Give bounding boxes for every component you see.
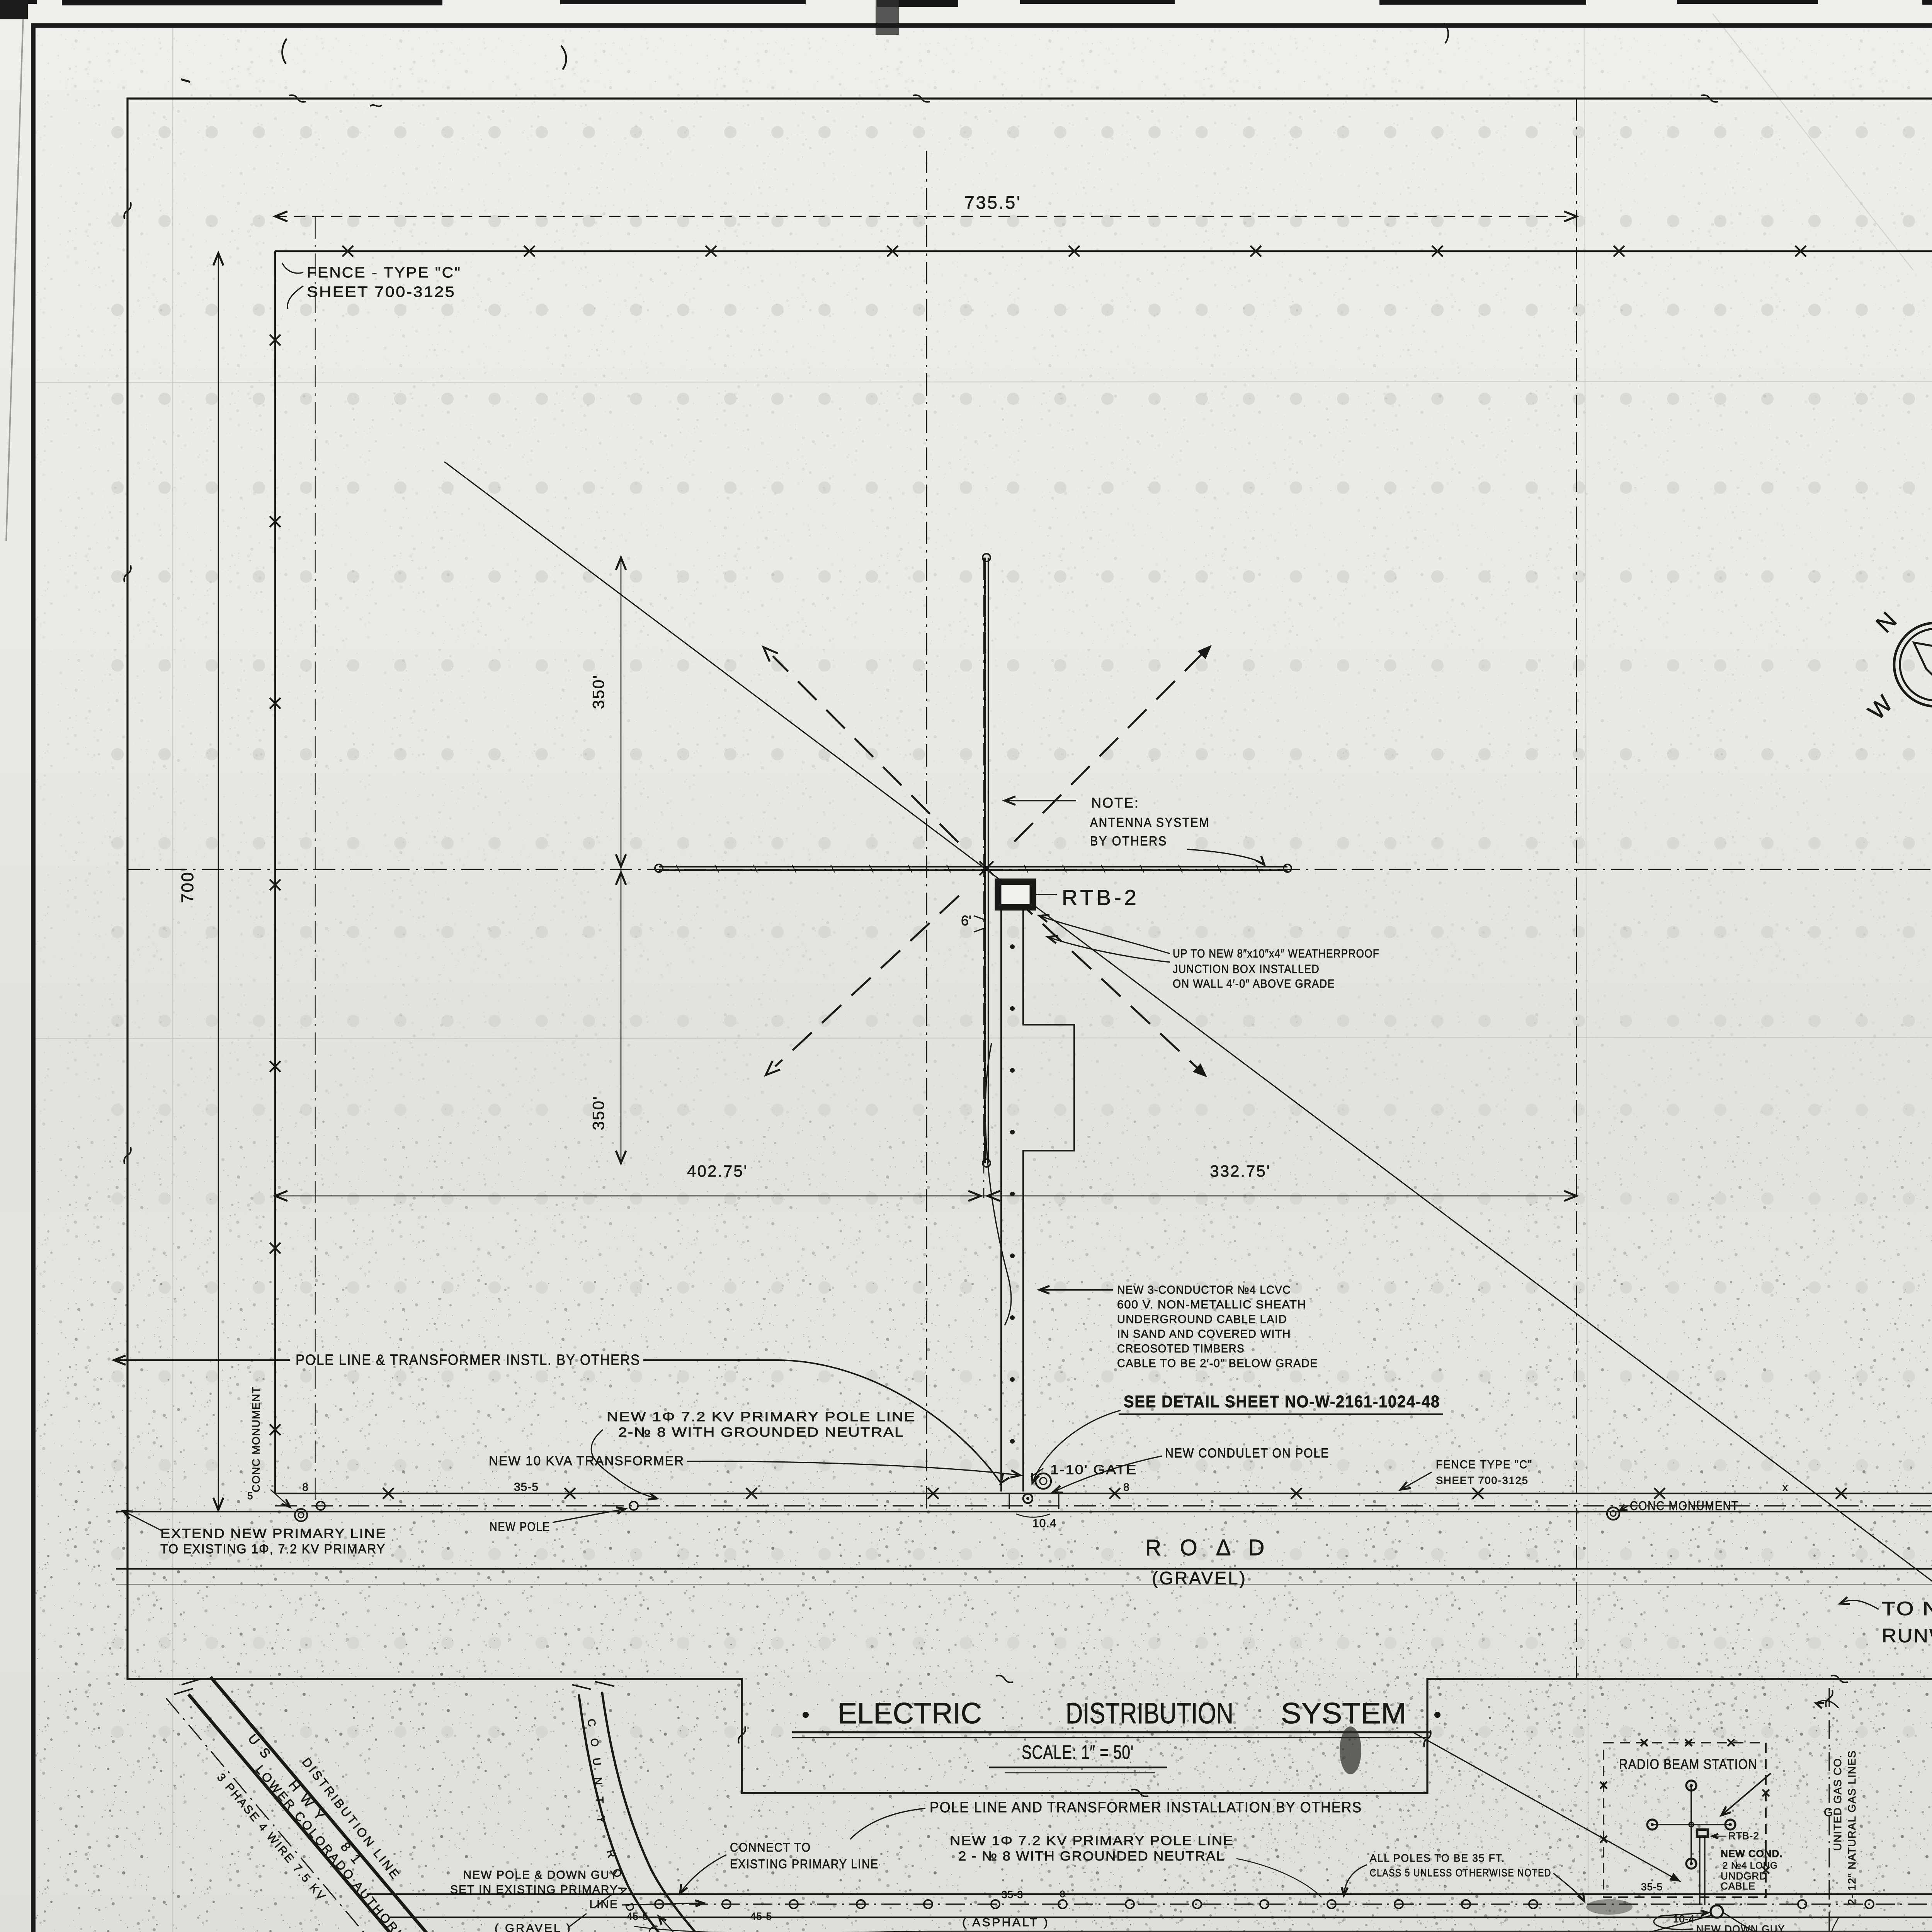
svg-text:NEW 1Φ 7.2 KV PRIMARY POLE LIN: NEW 1Φ 7.2 KV PRIMARY POLE LINE [950, 1833, 1234, 1848]
svg-text:RTB-2: RTB-2 [1728, 1830, 1759, 1842]
svg-text:RTB-2: RTB-2 [1062, 885, 1139, 910]
svg-text:45-5: 45-5 [750, 1910, 772, 1922]
svg-text:10.4: 10.4 [1032, 1517, 1056, 1530]
svg-text:( GRAVEL ): ( GRAVEL ) [495, 1922, 572, 1932]
svg-text:FENCE - TYPE "C": FENCE - TYPE "C" [307, 265, 461, 281]
svg-text:SHEET 700-3125: SHEET 700-3125 [1436, 1475, 1529, 1486]
svg-text:35-5: 35-5 [514, 1481, 539, 1493]
svg-text:DISTRIBUTION: DISTRIBUTION [1066, 1697, 1233, 1730]
svg-text:ALL POLES TO BE 35 FT.: ALL POLES TO BE 35 FT. [1370, 1852, 1505, 1864]
svg-text:TO EXISTING 1Φ, 7.2 KV PRIMARY: TO EXISTING 1Φ, 7.2 KV PRIMARY [160, 1542, 386, 1556]
svg-text:2 - № 8 WITH GROUNDED NEUTRAL: 2 - № 8 WITH GROUNDED NEUTRAL [958, 1849, 1225, 1864]
svg-text:ELECTRIC: ELECTRIC [838, 1697, 982, 1730]
svg-text:Y: Y [595, 1816, 607, 1823]
svg-text:NEW 1Φ 7.2 KV PRIMARY POLE LIN: NEW 1Φ 7.2 KV PRIMARY POLE LINE [607, 1410, 916, 1424]
svg-text:350': 350' [589, 674, 607, 709]
svg-text:CREOSOTED TIMBERS: CREOSOTED TIMBERS [1117, 1342, 1245, 1355]
svg-text:POLE LINE AND TRANSFORMER INST: POLE LINE AND TRANSFORMER INSTALLATION B… [930, 1799, 1362, 1816]
svg-text:2-№ 8 WITH GROUNDED NEUTRAL: 2-№ 8 WITH GROUNDED NEUTRAL [618, 1425, 904, 1440]
svg-text:45-5: 45-5 [627, 1910, 648, 1922]
svg-text:332.75': 332.75' [1210, 1162, 1270, 1180]
svg-text:NOTE:: NOTE: [1091, 795, 1139, 811]
svg-text:SYSTEM: SYSTEM [1281, 1697, 1406, 1730]
svg-text:NEW COND.: NEW COND. [1721, 1848, 1783, 1859]
svg-text:35-3: 35-3 [1002, 1889, 1023, 1900]
svg-text:BY OTHERS: BY OTHERS [1090, 834, 1167, 849]
svg-text:(GRAVEL): (GRAVEL) [1152, 1568, 1247, 1588]
svg-text:CABLE TO BE 2′-0″ BELOW GRADE: CABLE TO BE 2′-0″ BELOW GRADE [1117, 1357, 1318, 1370]
svg-text:U: U [590, 1757, 603, 1766]
svg-text:2- 12″ NATURAL GAS LINES: 2- 12″ NATURAL GAS LINES [1846, 1750, 1858, 1905]
svg-text:8: 8 [1123, 1481, 1129, 1493]
svg-text:IN SAND AND COVERED WITH: IN SAND AND COVERED WITH [1117, 1328, 1291, 1340]
svg-text:NEW POLE & DOWN GUY: NEW POLE & DOWN GUY [463, 1869, 618, 1881]
svg-text:R O Δ D: R O Δ D [1145, 1535, 1271, 1560]
svg-text:35-5: 35-5 [1641, 1881, 1663, 1893]
svg-text:LINE: LINE [589, 1898, 618, 1911]
svg-text:T: T [594, 1796, 606, 1803]
svg-text:O: O [588, 1738, 601, 1748]
svg-text:700': 700' [178, 867, 197, 903]
svg-text:600 V. NON-METALLIC SHEATH: 600 V. NON-METALLIC SHEATH [1117, 1298, 1306, 1311]
svg-text:CONNECT TO: CONNECT TO [730, 1840, 811, 1854]
svg-text:402.75': 402.75' [687, 1162, 748, 1180]
svg-text:POLE LINE & TRANSFORMER INSTL.: POLE LINE & TRANSFORMER INSTL. BY OTHERS [296, 1352, 640, 1368]
svg-text:CONC MONUMENT: CONC MONUMENT [250, 1386, 262, 1492]
svg-text:SET IN EXISTING PRIMARY: SET IN EXISTING PRIMARY [450, 1883, 618, 1896]
svg-text:UNITED GAS CO.: UNITED GAS CO. [1832, 1754, 1844, 1851]
svg-text:SCALE: 1″ = 50': SCALE: 1″ = 50' [1022, 1742, 1134, 1763]
svg-text:NEW 3-CONDUCTOR №4 LCVC: NEW 3-CONDUCTOR №4 LCVC [1117, 1284, 1291, 1296]
svg-text:FENCE TYPE "C": FENCE TYPE "C" [1436, 1458, 1532, 1471]
svg-text:NEW CONDULET ON POLE: NEW CONDULET ON POLE [1165, 1446, 1329, 1461]
svg-text:UP TO NEW 8″x10″x4″ WEATHERPRO: UP TO NEW 8″x10″x4″ WEATHERPROOF [1173, 947, 1379, 960]
svg-text:1-10' GATE: 1-10' GATE [1050, 1463, 1137, 1477]
svg-text:UNDERGROUND CABLE LAID: UNDERGROUND CABLE LAID [1117, 1313, 1287, 1326]
svg-text:CLASS 5 UNLESS OTHERWISE NOTED: CLASS 5 UNLESS OTHERWISE NOTED [1370, 1867, 1551, 1879]
svg-text:RUNWAY-4-13 MILES: RUNWAY-4-13 MILES [1882, 1625, 1932, 1646]
svg-text:ANTENNA SYSTEM: ANTENNA SYSTEM [1090, 815, 1210, 830]
svg-text:8: 8 [1060, 1889, 1065, 1900]
svg-text:x: x [1783, 1481, 1788, 1493]
svg-text:EXISTING PRIMARY LINE: EXISTING PRIMARY LINE [730, 1857, 879, 1871]
svg-text:5: 5 [247, 1490, 253, 1502]
svg-text:CONC MONUMENT: CONC MONUMENT [1630, 1499, 1739, 1513]
svg-text:RADIO BEAM STATION: RADIO BEAM STATION [1619, 1756, 1757, 1772]
svg-text:NEW POLE: NEW POLE [490, 1520, 550, 1534]
svg-text:EXTEND NEW PRIMARY LINE: EXTEND NEW PRIMARY LINE [160, 1526, 386, 1541]
svg-text:NEW 10 KVA TRANSFORMER: NEW 10 KVA TRANSFORMER [489, 1454, 684, 1468]
svg-text:SEE DETAIL SHEET NO-W-2161-1: SEE DETAIL SHEET NO-W-2161-1024-48 [1124, 1392, 1440, 1411]
svg-text:8: 8 [302, 1481, 308, 1493]
svg-text:TO NORTH-SOUTH: TO NORTH-SOUTH [1882, 1598, 1932, 1619]
svg-text:JUNCTION BOX INSTALLED: JUNCTION BOX INSTALLED [1173, 962, 1320, 976]
svg-text:2 №4 LONG: 2 №4 LONG [1723, 1861, 1778, 1871]
svg-text:ON WALL 4′-0″ ABOVE GRADE: ON WALL 4′-0″ ABOVE GRADE [1173, 977, 1335, 990]
svg-text:SHEET 700-3125: SHEET 700-3125 [307, 284, 456, 300]
svg-text:NEW DOWN GUY: NEW DOWN GUY [1696, 1923, 1785, 1932]
svg-text:6': 6' [961, 913, 971, 929]
svg-text:735.5': 735.5' [964, 192, 1022, 213]
svg-text:350': 350' [589, 1095, 607, 1130]
svg-text:( ASPHALT ): ( ASPHALT ) [962, 1916, 1049, 1929]
svg-text:CABLE: CABLE [1721, 1880, 1755, 1892]
svg-text:N: N [592, 1777, 604, 1785]
